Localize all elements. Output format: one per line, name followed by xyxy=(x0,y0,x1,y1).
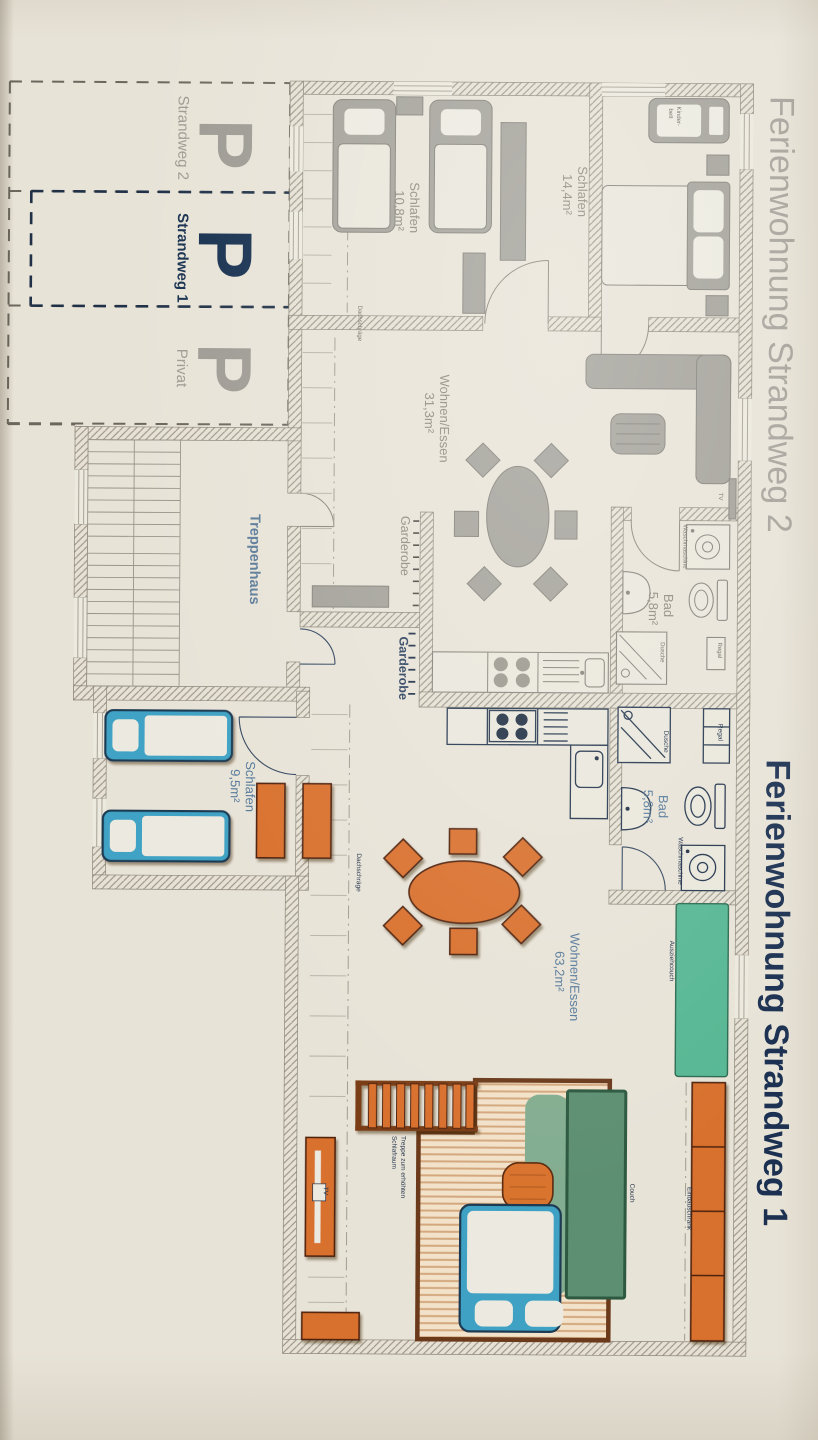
apt1-living-area: 63,2m² xyxy=(552,951,567,992)
apt2-kitchen xyxy=(432,652,608,693)
chair xyxy=(533,567,567,601)
parking-symbol-1: P xyxy=(182,119,267,170)
apt2-bedroom1-area: 10,8m² xyxy=(392,190,407,231)
chair xyxy=(450,928,477,954)
chair xyxy=(449,829,476,854)
apartment2: Schlafen 10,8m² Dachschräge Kinder- bett… xyxy=(312,96,739,694)
apt2-shelf-label: Regal xyxy=(716,642,722,658)
chair xyxy=(534,444,568,478)
dining-table xyxy=(486,466,549,567)
toilet xyxy=(685,784,725,828)
apt1-stairs-label-line2: Schlafraum xyxy=(390,1136,397,1169)
parking-symbol-3: P xyxy=(181,343,266,394)
apt1-bath-area: 5,8m² xyxy=(641,790,656,824)
chair xyxy=(467,567,501,601)
built-in-closet xyxy=(691,1083,726,1341)
apt2-bedroom2-area: 14,4m² xyxy=(560,174,575,215)
nightstand xyxy=(707,155,729,175)
sink xyxy=(585,659,604,687)
apt1-bath: Dusche Regal Bad 5,8m² xyxy=(617,707,730,891)
apartment2-title: Ferienwohnung Strandweg 2 xyxy=(760,96,801,533)
chair xyxy=(504,838,542,876)
apt1-sofa-bed-label: Ausziehcouch xyxy=(668,941,675,982)
apt2-living-area: 31,3m² xyxy=(422,392,437,433)
apt1-tv-board xyxy=(305,1137,335,1256)
apartment1-title: Ferienwohnung Strandweg 1 xyxy=(756,759,797,1226)
apt2-bedroom1: Schlafen 10,8m² Dachschräge xyxy=(332,96,526,342)
apt1-couch-label: Couch xyxy=(628,1184,635,1203)
chair xyxy=(384,906,422,944)
nightstand xyxy=(706,296,728,316)
chair xyxy=(454,511,478,536)
shelf xyxy=(703,709,729,763)
washing-machine xyxy=(686,525,729,569)
apt2-bath-area: 5,8m² xyxy=(646,592,661,626)
chair xyxy=(555,511,577,539)
crib: Kinder- bett xyxy=(649,98,730,143)
apt1-kitchen xyxy=(447,708,608,819)
green-couch xyxy=(566,1091,626,1298)
apt1-shower-label: Dusche xyxy=(662,731,669,754)
parking-symbol-2: P xyxy=(182,228,267,279)
dining-table xyxy=(409,861,520,924)
stairwell-label: Treppenhaus xyxy=(246,514,263,605)
apt2-bedroom1-name: Schlafen xyxy=(407,182,422,233)
apt1-bedroom-name: Schlafen xyxy=(243,761,258,812)
couch-arm xyxy=(696,355,731,484)
washing-machine xyxy=(681,845,724,890)
dresser xyxy=(463,253,485,313)
wardrobe xyxy=(500,123,526,261)
sofa-bed xyxy=(675,904,728,1077)
apt1-wardrobe-label: Garderobe xyxy=(396,636,410,700)
parking-label-strandweg2: Strandweg 2 xyxy=(174,95,192,180)
apt1-washer-label: Waschmaschine xyxy=(676,837,683,885)
crib-label-line2: bett xyxy=(667,109,673,119)
chair xyxy=(384,839,422,877)
cabinet xyxy=(302,1312,359,1339)
apt1-roof-slope-label: Dachschräge xyxy=(355,853,362,892)
cabinet xyxy=(256,783,285,858)
apt1-bath-name: Bad xyxy=(656,795,671,818)
tv-board xyxy=(729,479,736,519)
crib-label-line1: Kinder- xyxy=(675,107,681,126)
apt1-living-name: Wohnen/Essen xyxy=(567,933,583,1021)
apt2-bedroom2: Kinder- bett Schlafen 14,4m² xyxy=(559,98,730,316)
coat-rack xyxy=(413,521,420,605)
toilet xyxy=(689,580,727,620)
apt1-shelf-label: Regal xyxy=(716,724,723,742)
ladder xyxy=(355,1080,478,1131)
apt2-bedroom2-name: Schlafen xyxy=(575,166,590,217)
sideboard xyxy=(312,586,389,608)
sleeping-platform: Treppe zum erhöhten Schlafraum Couch xyxy=(354,1079,636,1340)
cushion xyxy=(503,1163,554,1210)
nightstand xyxy=(397,97,423,115)
apt2-bath: Waschmaschine Dusche Regal Bad 5,8m² xyxy=(616,524,730,684)
apt2-bath-name: Bad xyxy=(661,594,676,617)
floor-plan-svg: P Strandweg 2 P Strandweg 1 P Privat xyxy=(0,0,818,1440)
apt2-wardrobe-label: Garderobe xyxy=(398,516,412,576)
apt1-bedroom-area: 9,5m² xyxy=(228,769,243,803)
apt1-wardrobe: Garderobe xyxy=(396,633,415,700)
parking-label-privat: Privat xyxy=(173,349,190,388)
parking-label-strandweg1: Strandweg 1 xyxy=(173,213,191,303)
apartment1: Garderobe Dusche xyxy=(100,632,730,1342)
sink xyxy=(575,751,602,787)
apt1-stairs-label-line1: Treppe zum erhöhten xyxy=(399,1136,406,1198)
apt2-living-name: Wohnen/Essen xyxy=(437,374,453,462)
apt2-shower-label: Dusche xyxy=(659,642,665,663)
chair xyxy=(466,443,500,477)
apt2-roof-slope-label: Dachschräge xyxy=(356,306,362,342)
apt1-tv-label: TV xyxy=(322,1187,329,1196)
stairwell: Treppenhaus xyxy=(87,440,263,687)
parking-area: P Strandweg 2 P Strandweg 1 P Privat xyxy=(8,81,290,425)
floor-plan-photo: P Strandweg 2 P Strandweg 1 P Privat xyxy=(0,0,818,1440)
apt2-tv-label: TV xyxy=(717,493,723,501)
apt2-washer-label: Waschmaschine xyxy=(681,525,687,570)
ottoman xyxy=(611,414,666,455)
cabinet xyxy=(303,784,332,859)
apt1-dining xyxy=(383,828,542,955)
apt1-closet-label: Einbauschrank xyxy=(685,1187,692,1231)
